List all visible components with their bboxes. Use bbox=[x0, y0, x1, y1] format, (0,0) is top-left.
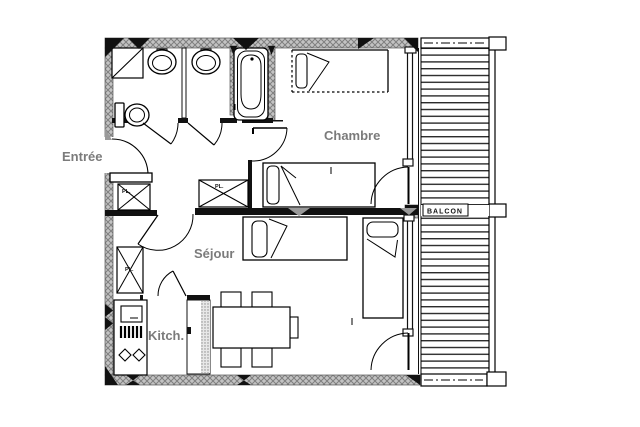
closet-entree-low: PL. bbox=[117, 247, 143, 293]
door-balcony-sejour bbox=[371, 333, 409, 370]
single-bed-chambre-low bbox=[263, 163, 375, 207]
kitchen-unit bbox=[114, 300, 147, 375]
door-balcony-chambre bbox=[371, 167, 409, 204]
floorplan-image: BALCON bbox=[0, 0, 640, 427]
bathtub bbox=[234, 48, 268, 120]
cooktop bbox=[121, 306, 142, 322]
door-sejour bbox=[138, 214, 193, 250]
room-label-kitchen: Kitch. bbox=[148, 328, 184, 343]
balcony-post bbox=[489, 37, 506, 50]
chair bbox=[252, 292, 272, 307]
door-kitchen bbox=[158, 271, 186, 296]
dining-set bbox=[213, 292, 298, 367]
door-wc-2 bbox=[188, 123, 222, 145]
chair bbox=[221, 292, 241, 307]
balcony-post bbox=[487, 372, 506, 386]
balcony-label: BALCON bbox=[427, 209, 463, 216]
single-bed-sejour-horizontal bbox=[243, 217, 347, 260]
floorplan-svg: BALCON bbox=[0, 0, 640, 427]
washbasin bbox=[192, 49, 220, 74]
closet-sejour: PL. bbox=[199, 180, 248, 207]
single-bed-chambre-top bbox=[292, 50, 388, 92]
door-entrance bbox=[110, 139, 152, 182]
closet-label: PL. bbox=[122, 189, 131, 195]
closet-label: PL. bbox=[125, 267, 134, 273]
shower bbox=[112, 48, 143, 78]
closet-label: PL. bbox=[215, 184, 224, 190]
chair bbox=[252, 348, 272, 367]
room-label-sejour: Séjour bbox=[194, 246, 234, 261]
balcony: BALCON bbox=[421, 37, 506, 386]
closet-hall: PL. bbox=[118, 184, 150, 210]
chair bbox=[290, 317, 298, 338]
door-wc-1 bbox=[143, 123, 178, 144]
dining-table bbox=[213, 307, 290, 348]
washbasin bbox=[148, 49, 176, 74]
door-chambre bbox=[252, 128, 287, 161]
room-label-entree: Entrée bbox=[62, 149, 102, 164]
balcony-post bbox=[489, 204, 506, 217]
single-bed-sejour-vertical bbox=[352, 218, 403, 325]
room-label-chambre: Chambre bbox=[324, 128, 380, 143]
chair bbox=[221, 348, 241, 367]
